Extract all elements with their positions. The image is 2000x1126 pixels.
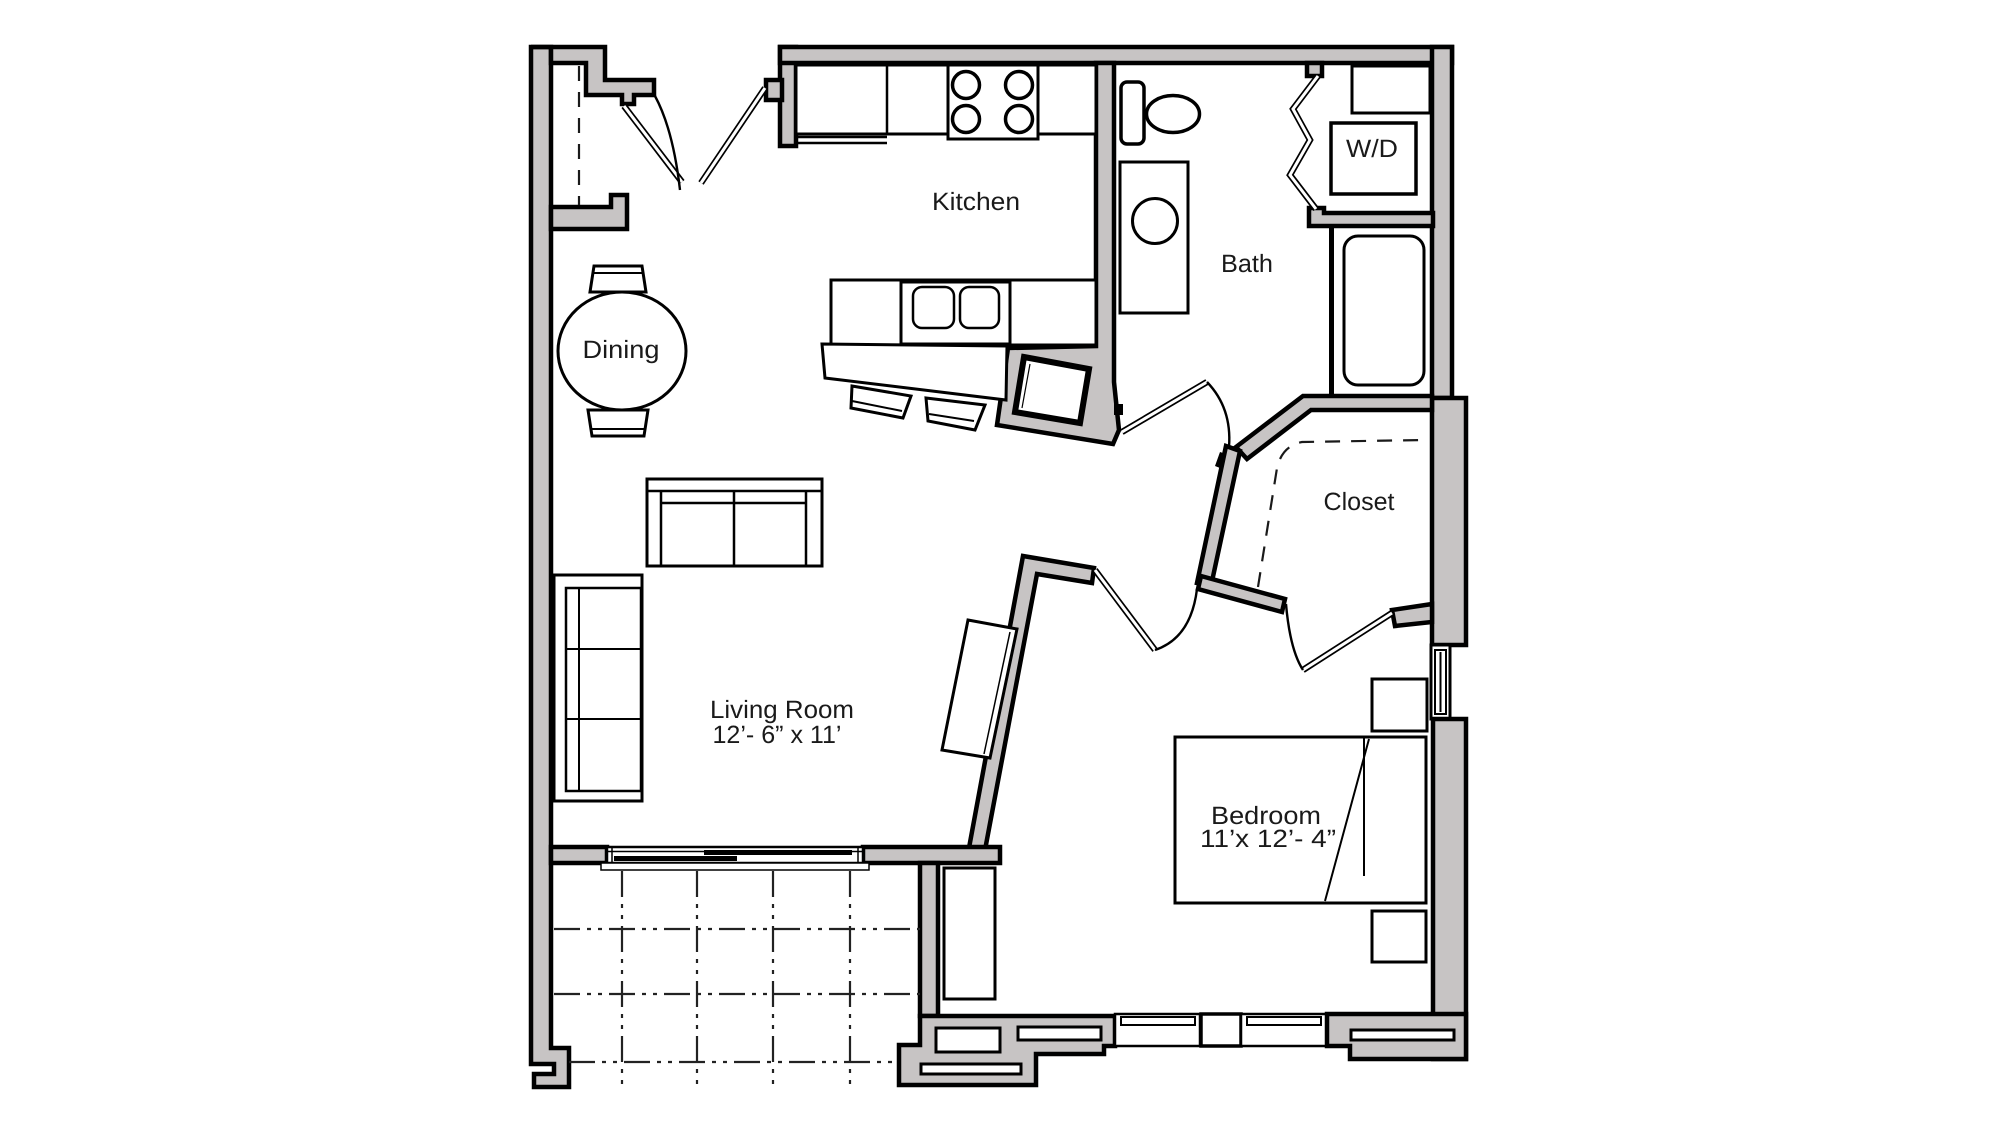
svg-text:Kitchen: Kitchen <box>932 188 1020 216</box>
svg-text:Bath: Bath <box>1221 250 1273 278</box>
svg-text:11’x 12’- 4”: 11’x 12’- 4” <box>1200 825 1336 853</box>
svg-text:W/D: W/D <box>1346 135 1398 163</box>
svg-text:Living Room: Living Room <box>710 696 854 724</box>
svg-text:12’- 6” x 11’: 12’- 6” x 11’ <box>713 721 842 749</box>
svg-text:Dining: Dining <box>583 336 660 364</box>
svg-text:Closet: Closet <box>1324 488 1395 516</box>
